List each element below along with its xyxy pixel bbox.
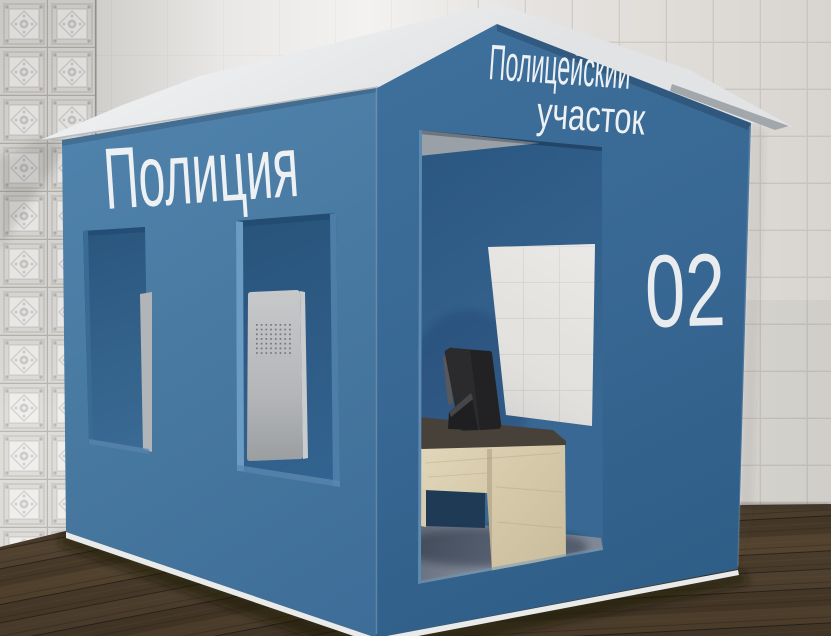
svg-text:02: 02 bbox=[644, 232, 727, 349]
svg-text:Полиция: Полиция bbox=[101, 117, 302, 228]
svg-text:участок: участок bbox=[535, 89, 647, 145]
